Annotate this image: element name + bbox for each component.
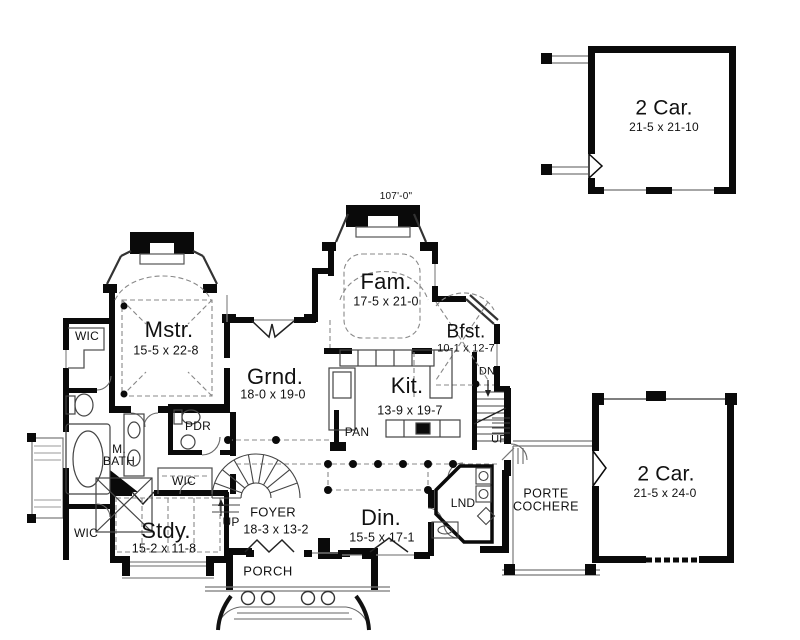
fireplace-master	[130, 232, 194, 264]
garage-top-door-arrow	[589, 154, 602, 178]
label-porte-cochere: PORTE COCHERE	[501, 487, 591, 513]
label-master-bath: M. BATH	[96, 443, 142, 467]
room-name-garage-top: 2 Car.	[635, 97, 692, 118]
room-dims-family: 17-5 x 21-0	[353, 296, 418, 309]
label-wic-upper: WIC	[75, 330, 99, 342]
label-pantry: PAN	[345, 426, 369, 438]
room-dims-kitchen: 13-9 x 19-7	[377, 405, 442, 418]
room-dims-grand: 18-0 x 19-0	[240, 389, 305, 402]
room-name-kitchen: Kit.	[391, 375, 424, 397]
side-stoop	[27, 433, 63, 523]
room-dims-breakfast: 10-1 x 12-7	[437, 343, 495, 354]
room-name-grand: Grnd.	[247, 366, 303, 388]
stair-arrow	[485, 390, 491, 397]
room-name-study: Stdy.	[141, 520, 191, 542]
garage-right-door-arrow	[593, 451, 606, 486]
label-porch: PORCH	[243, 564, 292, 577]
label-stairs-up: UP	[491, 434, 507, 445]
room-name-master: Mstr.	[145, 319, 194, 341]
overall-dimension: 107'-0"	[380, 192, 412, 202]
porch-steps	[205, 587, 390, 630]
room-name-dining: Din.	[361, 507, 401, 529]
room-dims-garage-top: 21-5 x 21-10	[629, 121, 699, 133]
room-dims-garage-right: 21-5 x 24-0	[634, 487, 697, 499]
room-dims-master: 15-5 x 22-8	[133, 345, 198, 358]
label-stairs-down: DN	[479, 366, 495, 377]
room-name-foyer: FOYER	[250, 505, 296, 518]
label-wic-mid: WIC	[172, 475, 196, 487]
garage-connector	[541, 53, 588, 175]
label-powder-room: PDR	[185, 420, 211, 432]
bay-windows	[107, 214, 498, 324]
label-foyer-stair-up: UP	[222, 516, 239, 528]
label-wic-lower: WIC	[74, 527, 98, 539]
room-name-breakfast: Bfst.	[446, 322, 485, 341]
door-arcs	[97, 376, 527, 538]
room-dims-study: 15-2 x 11-8	[132, 543, 197, 556]
floor-plan: 107'-0" 2 Car. 21-5 x 21-10 Fam. 17-5 x …	[0, 0, 800, 640]
fireplace-family	[346, 205, 420, 237]
room-dims-foyer: 18-3 x 13-2	[243, 524, 308, 537]
room-name-garage-right: 2 Car.	[637, 463, 694, 484]
room-dims-dining: 15-5 x 17-1	[349, 532, 414, 545]
label-laundry: LND	[451, 497, 476, 509]
room-name-family: Fam.	[361, 271, 412, 293]
